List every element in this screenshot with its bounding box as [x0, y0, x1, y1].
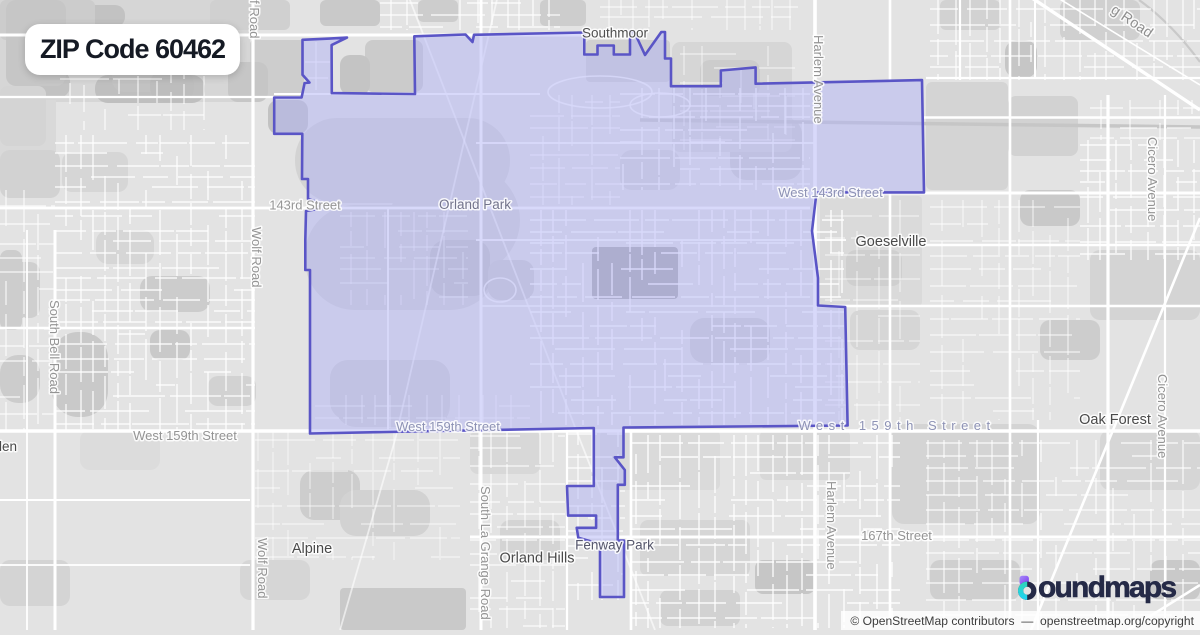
svg-text:Southmoor: Southmoor: [582, 26, 649, 41]
svg-text:Harlem Avenue: Harlem Avenue: [824, 481, 839, 570]
svg-text:Oak Forest: Oak Forest: [1079, 412, 1151, 428]
svg-text:South La Grange Road: South La Grange Road: [478, 486, 493, 620]
svg-text:167th Street: 167th Street: [861, 528, 932, 543]
svg-text:143rd Street: 143rd Street: [269, 198, 341, 213]
svg-text:South Bell Road: South Bell Road: [47, 300, 62, 394]
svg-text:Wolf Road: Wolf Road: [247, 0, 262, 38]
svg-text:Orland Park: Orland Park: [439, 197, 511, 212]
svg-text:len: len: [0, 439, 17, 454]
svg-text:West 159th Street: West 159th Street: [396, 419, 500, 434]
svg-text:West 143rd Street: West 143rd Street: [778, 185, 883, 200]
svg-text:West 159th Street: West 159th Street: [133, 428, 237, 443]
svg-text:Goeselville: Goeselville: [856, 234, 927, 250]
svg-text:Orland Hills: Orland Hills: [500, 551, 575, 567]
svg-text:Harlem Avenue: Harlem Avenue: [811, 35, 826, 124]
svg-text:Wolf Road: Wolf Road: [249, 227, 264, 287]
svg-text:Wolf Road: Wolf Road: [255, 538, 270, 598]
svg-text:Cicero Avenue: Cicero Avenue: [1155, 374, 1170, 458]
svg-text:West 159th Street: West 159th Street: [798, 418, 995, 433]
svg-text:Fenway Park: Fenway Park: [575, 538, 654, 553]
svg-text:Alpine: Alpine: [292, 541, 332, 557]
svg-text:Cicero Avenue: Cicero Avenue: [1145, 137, 1160, 221]
